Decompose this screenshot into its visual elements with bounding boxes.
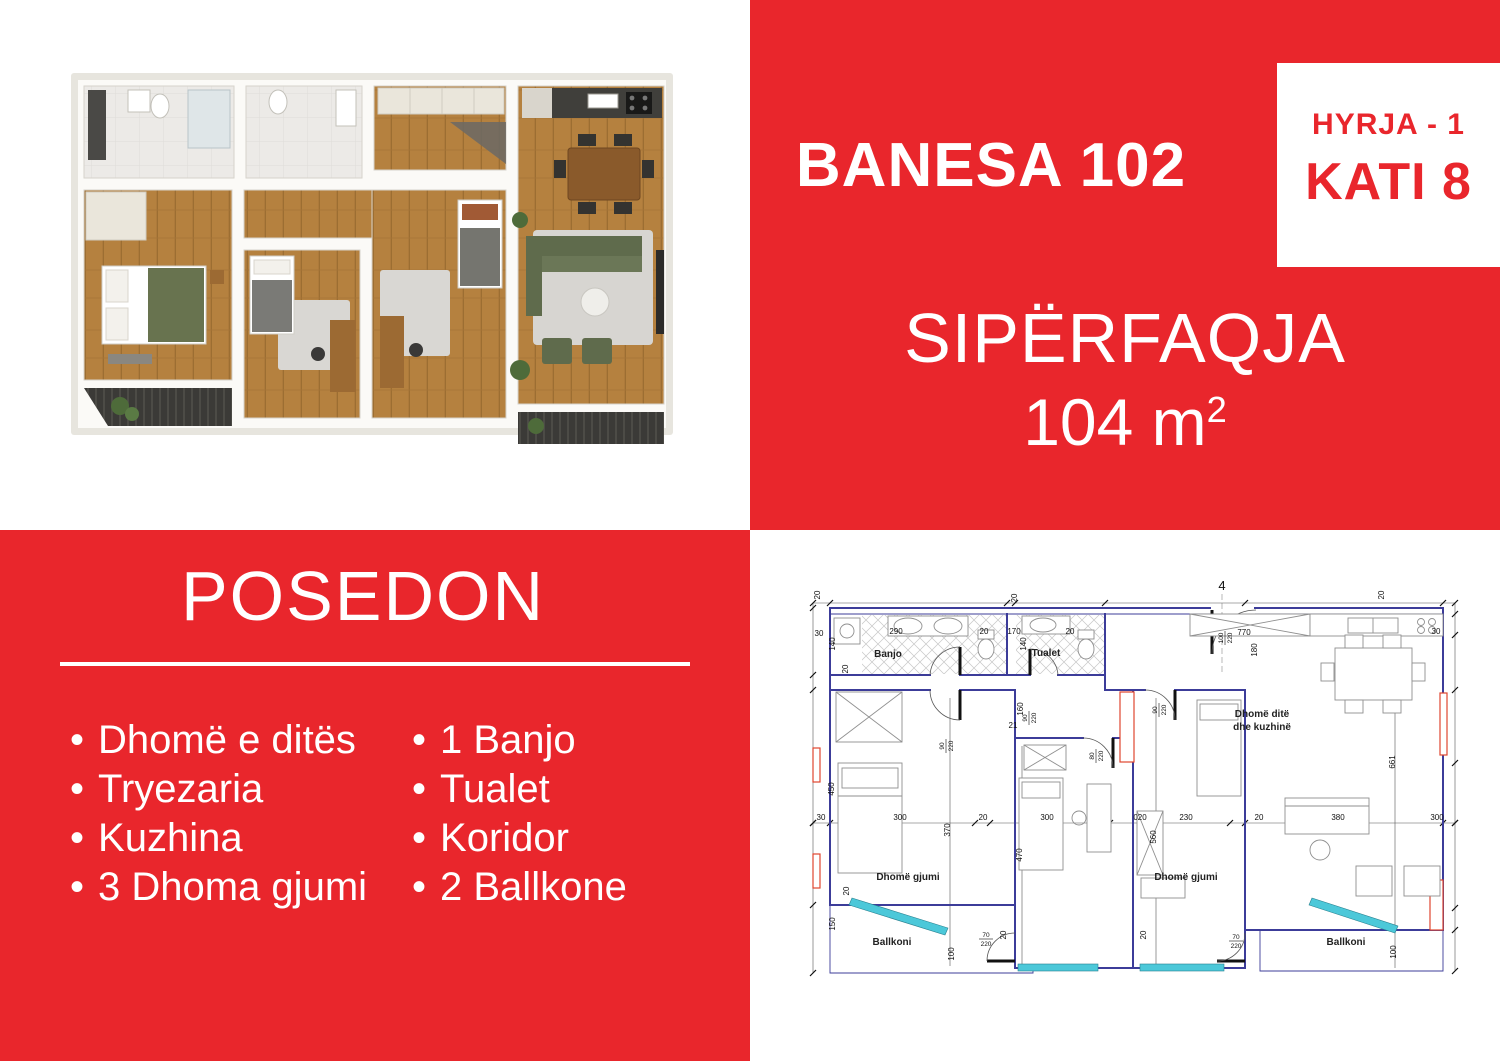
bullet-icon: • xyxy=(70,814,84,863)
svg-text:220: 220 xyxy=(981,941,992,948)
svg-text:220: 220 xyxy=(1161,704,1168,715)
entrance-label: HYRJA - 1 xyxy=(1277,108,1500,142)
area-exponent: 2 xyxy=(1207,389,1227,430)
dimension-label: 20 xyxy=(1255,813,1264,822)
feature-label: Kuzhina xyxy=(98,814,243,863)
svg-text:70: 70 xyxy=(1232,934,1240,941)
plan-panel: 4BanjoTualetDhomë ditëdhe kuzhinëDhomë g… xyxy=(750,530,1500,1061)
feature-item: •Kuzhina xyxy=(70,814,367,863)
svg-text:220: 220 xyxy=(1231,943,1242,950)
dimension-label: 180 xyxy=(1250,643,1259,657)
features-title: POSEDON xyxy=(0,556,726,636)
features-column-1: •Dhomë e ditës•Tryezaria•Kuzhina•3 Dhoma… xyxy=(70,716,367,912)
door-size-label: 90220 xyxy=(939,739,955,753)
bullet-icon: • xyxy=(412,814,426,863)
axis-label: 4 xyxy=(1218,578,1225,593)
floorplan-3d-render xyxy=(68,70,676,452)
svg-text:220: 220 xyxy=(948,740,955,751)
feature-label: 3 Dhoma gjumi xyxy=(98,863,367,912)
feature-label: Tryezaria xyxy=(98,765,263,814)
room-label: Dhomë gjumi xyxy=(876,872,940,883)
bullet-icon: • xyxy=(412,863,426,912)
dimension-label: 140 xyxy=(1019,637,1028,651)
feature-item: •Dhomë e ditës xyxy=(70,716,367,765)
svg-text:90: 90 xyxy=(1022,714,1029,722)
svg-text:70: 70 xyxy=(982,932,990,939)
dimension-label: 230 xyxy=(1179,813,1193,822)
dimension-label: 300 xyxy=(893,813,907,822)
bullet-icon: • xyxy=(70,765,84,814)
bullet-icon: • xyxy=(412,716,426,765)
floorplan-2d-drawing: 4BanjoTualetDhomë ditëdhe kuzhinëDhomë g… xyxy=(800,578,1460,978)
dimension-label: 20 xyxy=(979,813,988,822)
feature-item: •Tualet xyxy=(412,765,627,814)
room-label: Dhomë ditë xyxy=(1235,709,1290,720)
dimension-label: 661 xyxy=(1388,755,1397,769)
room-label: Ballkoni xyxy=(1327,937,1366,948)
dimension-label: 450 xyxy=(827,782,836,796)
feature-item: •2 Ballkone xyxy=(412,863,627,912)
dimension-label: 560 xyxy=(1149,830,1158,844)
svg-text:220: 220 xyxy=(1031,712,1038,723)
feature-item: •3 Dhoma gjumi xyxy=(70,863,367,912)
dimension-label: 20 xyxy=(999,930,1008,939)
bullet-icon: • xyxy=(70,863,84,912)
dimension-label: 20 xyxy=(1010,593,1019,602)
feature-item: •Koridor xyxy=(412,814,627,863)
dimension-label: 100 xyxy=(1389,945,1398,959)
dimension-label: 160 xyxy=(1016,702,1025,716)
svg-text:220: 220 xyxy=(1098,750,1105,761)
feature-label: 2 Ballkone xyxy=(440,863,627,912)
dimension-label: 21 xyxy=(1009,721,1018,730)
bullet-icon: • xyxy=(70,716,84,765)
svg-text:80: 80 xyxy=(1089,752,1096,760)
door-size-label: 70220 xyxy=(979,932,993,948)
dimension-label: 20 xyxy=(980,627,989,636)
svg-text:90: 90 xyxy=(1152,706,1159,714)
flyer: BANESA 102 HYRJA - 1 KATI 8 SIPËRFAQJA 1… xyxy=(0,0,1500,1061)
dimension-label: 470 xyxy=(1015,848,1024,862)
dimension-label: 20 xyxy=(1066,627,1075,636)
dimension-label: 300 xyxy=(1430,813,1444,822)
dimension-label: 20 xyxy=(841,664,850,673)
features-panel: POSEDON •Dhomë e ditës•Tryezaria•Kuzhina… xyxy=(0,530,750,1061)
divider-line xyxy=(60,662,690,666)
feature-label: Koridor xyxy=(440,814,569,863)
dimension-label: 020 xyxy=(1133,813,1147,822)
dimension-label: 20 xyxy=(813,590,822,599)
dimension-label: 30 xyxy=(815,629,824,638)
room-label: dhe kuzhinë xyxy=(1233,722,1291,733)
door-size-label: 70220 xyxy=(1229,934,1243,950)
dimension-label: 20 xyxy=(842,886,851,895)
dimension-label: 290 xyxy=(889,627,903,636)
dimension-label: 380 xyxy=(1331,813,1345,822)
feature-item: •1 Banjo xyxy=(412,716,627,765)
apartment-title: BANESA 102 xyxy=(750,130,1232,201)
dimension-label: 170 xyxy=(1007,627,1021,636)
dimension-label: 30 xyxy=(817,813,826,822)
dimension-label: 370 xyxy=(943,823,952,837)
room-label: Dhomë gjumi xyxy=(1154,872,1218,883)
room-label: Ballkoni xyxy=(873,937,912,948)
area-number: 104 m xyxy=(1023,385,1206,459)
area-value: 104 m2 xyxy=(750,384,1500,460)
bullet-icon: • xyxy=(412,765,426,814)
dimension-label: 20 xyxy=(1139,930,1148,939)
dimension-label: 150 xyxy=(828,917,837,931)
svg-text:100: 100 xyxy=(1218,632,1225,643)
entrance-floor-box: HYRJA - 1 KATI 8 xyxy=(1277,63,1500,267)
dimension-label: 100 xyxy=(947,947,956,961)
area-title: SIPËRFAQJA xyxy=(750,298,1500,378)
dimension-label: 30 xyxy=(1432,627,1441,636)
svg-text:90: 90 xyxy=(939,742,946,750)
title-panel: BANESA 102 HYRJA - 1 KATI 8 SIPËRFAQJA 1… xyxy=(750,0,1500,530)
door-size-label: 80220 xyxy=(1089,749,1105,763)
feature-item: •Tryezaria xyxy=(70,765,367,814)
feature-label: Dhomë e ditës xyxy=(98,716,356,765)
room-label: Tualet xyxy=(1032,648,1061,659)
svg-text:220: 220 xyxy=(1227,632,1234,643)
floor-label: KATI 8 xyxy=(1277,152,1500,212)
room-label: Banjo xyxy=(874,649,902,660)
feature-label: Tualet xyxy=(440,765,550,814)
render-panel xyxy=(0,0,750,530)
dimension-label: 140 xyxy=(828,637,837,651)
dimension-label: 20 xyxy=(1377,590,1386,599)
dimension-label: 770 xyxy=(1237,628,1251,637)
feature-label: 1 Banjo xyxy=(440,716,576,765)
door-size-label: 90220 xyxy=(1152,703,1168,717)
dimension-label: 300 xyxy=(1040,813,1054,822)
features-column-2: •1 Banjo•Tualet•Koridor•2 Ballkone xyxy=(412,716,627,912)
